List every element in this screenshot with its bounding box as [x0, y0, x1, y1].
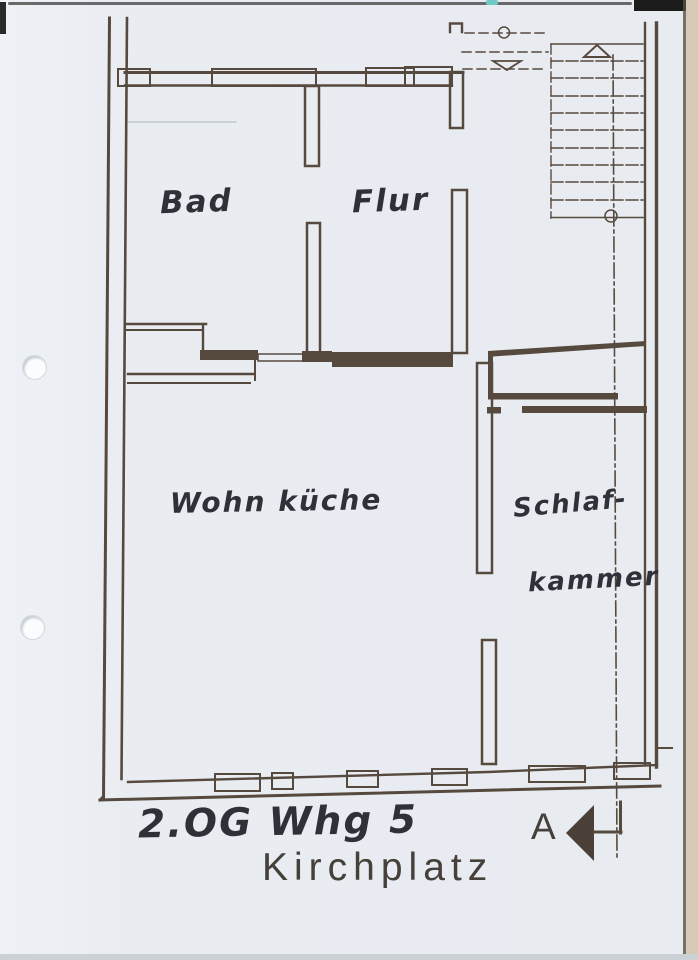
section-marker-arrow: [566, 802, 621, 861]
section-marker-label: A: [531, 806, 556, 848]
stair-landing-marks: [450, 24, 548, 71]
vestibule-wall-band: [488, 341, 646, 400]
room-label-bad: Bad: [159, 183, 233, 222]
stair-direction-arrow: [584, 45, 610, 57]
door-opening-sill: [258, 354, 304, 361]
bad-flur-walls: [125, 86, 453, 383]
floor-unit-label: 2.OG Whg 5: [138, 798, 419, 848]
bad-flur-partition-lower: [307, 223, 320, 354]
window-mullion: [215, 774, 260, 791]
wohnkueche-schlafkammer-partition-lower: [482, 640, 496, 764]
partition-foot: [302, 351, 332, 362]
scanned-floor-plan-page: Bad Flur Wohn küche Schlaf- kammer 2.OG …: [0, 0, 698, 960]
staircase: [551, 44, 643, 222]
flur-bottom-wall: [332, 352, 453, 367]
bad-flur-partition-upper: [305, 86, 319, 166]
window-mullion: [432, 769, 467, 785]
room-label-wohnkueche: Wohn küche: [170, 483, 383, 520]
street-label: Kirchplatz: [262, 846, 493, 890]
bottom-wall: [100, 763, 660, 800]
window-mullion: [347, 771, 378, 787]
room-label-flur: Flur: [351, 182, 429, 221]
section-axis-line: [613, 55, 617, 858]
flur-stairwell-partition: [452, 190, 467, 353]
window-mullion: [272, 773, 293, 789]
